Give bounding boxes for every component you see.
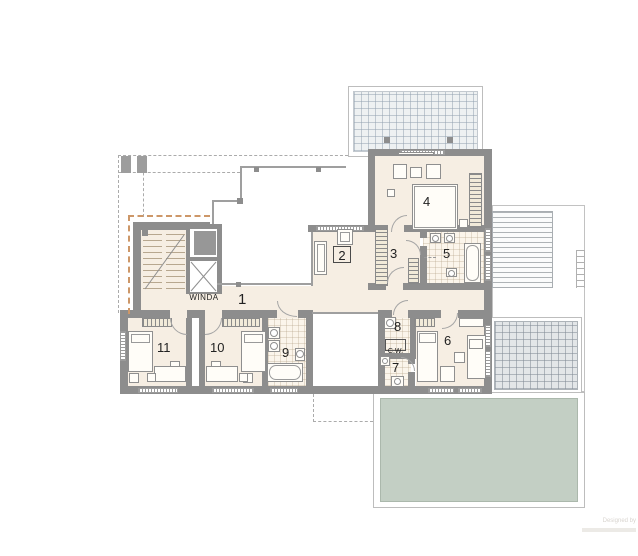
window [120,331,126,361]
column-stub [137,156,147,173]
console-table [398,152,434,155]
bed-pillow [244,334,263,343]
room-label-7: 7 [392,361,399,374]
sink-basin [270,342,278,350]
bathtub-basin [466,245,479,281]
door-opening [170,310,187,318]
dresser [459,318,484,327]
window [485,228,491,252]
sofa-cushion [317,244,325,272]
room-label-8: 8 [394,320,401,333]
void-railing [311,232,313,286]
closet [469,173,482,228]
insulation-dashed-line [128,215,210,217]
closet [142,318,172,327]
terrace-top-paving [353,91,478,152]
pergola-louvers [492,211,553,288]
closet [222,318,260,327]
door-opening [386,283,403,290]
ladder [576,250,585,288]
shower-screen [424,257,436,258]
room-label-1: 1 [238,292,246,307]
room-label-4: 4 [423,195,430,208]
room-label-3: 3 [390,247,397,260]
void-railing [312,312,378,314]
wall [368,149,375,229]
watermark-blur [582,528,636,532]
chair [147,373,156,382]
room-label-6: 6 [444,334,451,347]
elevator-x-icon [190,261,217,292]
window [212,388,254,393]
bed-pillow [131,334,150,343]
window [428,388,454,393]
ottoman [440,366,455,382]
washing-machine-drum [386,319,394,327]
bed-cover [414,186,456,228]
window [458,388,482,393]
armchair-cushion [340,232,350,242]
roof-overhang-dashed-line [118,155,348,156]
floor-plan: 1 2 3 4 5 6 7 8 9 10 11 WINDA C.W. Desig… [0,0,638,556]
closet [375,229,388,286]
watermark-credit: Designed by [570,518,636,524]
armchair [426,164,441,179]
toilet-bowl [394,378,401,385]
sink-basin [432,235,439,242]
roof-overhang-dashed-line [118,155,119,313]
window [270,388,298,393]
window [485,255,491,281]
stair-post [142,230,148,236]
railing-post [236,282,241,287]
room-label-10: 10 [210,341,224,354]
wall [420,246,427,286]
sink-basin [446,235,453,242]
terrace-lower-paving [494,321,578,390]
room-label-5: 5 [443,247,450,260]
hot-water-label-box: C.W. [385,339,406,351]
terrace-post [447,137,453,143]
wall [306,310,313,394]
elevator-label: WINDA [182,294,226,302]
stair-direction-line [143,233,186,291]
desk [206,366,238,382]
hot-water-label: C.W. [388,348,403,355]
toilet-bowl [296,350,304,358]
void-railing [212,200,214,224]
sink-basin [270,329,278,337]
insulation-dashed-line [128,215,130,314]
bathtub-basin [269,365,301,380]
closet [414,318,435,327]
wall [306,386,385,394]
wall [420,232,427,238]
window [138,388,178,393]
nightstand [459,219,468,228]
wall [408,372,415,386]
chair [239,373,248,382]
column-stub [121,156,131,173]
room-label-2: 2 [338,248,345,263]
room-label-9: 9 [282,346,289,359]
chair [454,352,465,363]
terrace-post [384,137,390,143]
railing-post [254,167,259,172]
room-label-11: 11 [157,341,171,354]
floor-lamp [387,189,395,197]
railing-post [237,198,243,204]
desk-item [469,339,483,349]
door-opening [205,310,222,318]
elevator-machine-block [194,231,216,255]
desk [154,366,186,382]
green-roof [380,398,578,502]
closet [408,258,419,284]
toilet-bowl [448,270,455,277]
void-railing [217,283,313,285]
railing-post [316,167,321,172]
roof-overhang-dashed-line [313,421,373,422]
sink-basin [382,358,388,364]
void-railing [240,166,242,202]
room-label-2-box: 2 [333,246,351,263]
nightstand [129,373,139,383]
side-table [410,167,422,178]
bed-pillow [419,333,436,343]
roof-overhang-dashed-line [313,394,314,422]
wall [133,222,141,312]
armchair [393,164,407,179]
